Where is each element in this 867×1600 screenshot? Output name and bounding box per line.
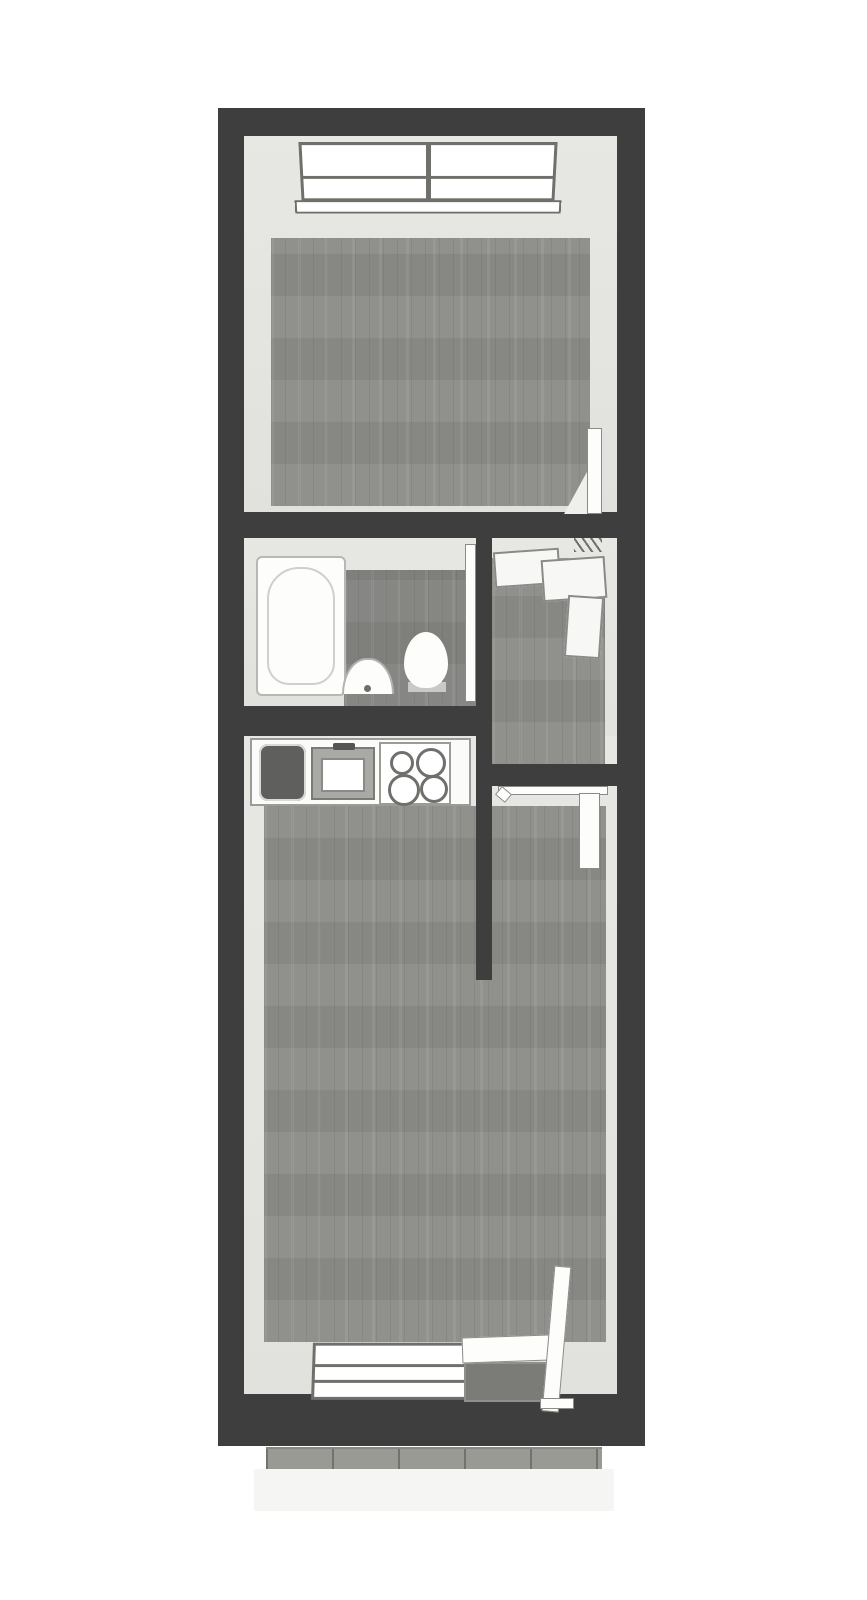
burner-icon: [390, 751, 414, 775]
glass-door-pane: [464, 1362, 550, 1402]
wall-bathroom-south: [244, 706, 492, 736]
kitchen-dark-basin: [259, 744, 306, 801]
balcony-deck: [266, 1447, 602, 1469]
exterior-wall-left: [218, 108, 244, 1446]
burner-icon: [388, 774, 420, 806]
window-rail-icon: [315, 1380, 470, 1383]
sink-bowl-icon: [321, 758, 365, 792]
wall-bathroom-hall-partition: [476, 536, 492, 980]
glass-door-sill: [540, 1398, 574, 1409]
window-rail-icon: [303, 176, 553, 179]
glass-door-open-pane: [462, 1334, 551, 1363]
burner-icon: [420, 775, 448, 803]
floor-plan-canvas: [0, 0, 867, 1600]
hall-door-leaf: [579, 793, 600, 869]
faucet-icon: [333, 743, 355, 750]
balcony-apron: [254, 1469, 614, 1511]
bathroom-door-leaf: [465, 544, 476, 702]
bathtub-basin-icon: [267, 567, 335, 685]
top-room-window: [298, 142, 557, 201]
window-rail-icon: [315, 1364, 469, 1367]
burner-icon: [416, 748, 446, 778]
wall-top-room-south: [244, 512, 617, 538]
wardrobe-hatch-icon: [574, 538, 602, 552]
window-mullion-icon: [426, 145, 431, 198]
top-room-floor: [271, 238, 590, 506]
living-room-floor: [264, 806, 606, 1342]
living-room-window: [311, 1343, 473, 1400]
exterior-wall-right: [617, 108, 645, 1446]
kitchen-sink: [311, 747, 375, 800]
top-room-door-leaf: [587, 428, 602, 514]
drain-icon: [364, 685, 371, 692]
wall-hallway-south: [492, 764, 617, 786]
exterior-wall-top: [218, 108, 645, 136]
window-sill-icon: [295, 200, 562, 213]
wardrobe-side-panel: [564, 595, 604, 659]
bathtub: [256, 556, 346, 696]
cooktop: [379, 742, 451, 805]
toilet: [404, 632, 448, 688]
exterior-wall-bottom: [218, 1394, 645, 1446]
